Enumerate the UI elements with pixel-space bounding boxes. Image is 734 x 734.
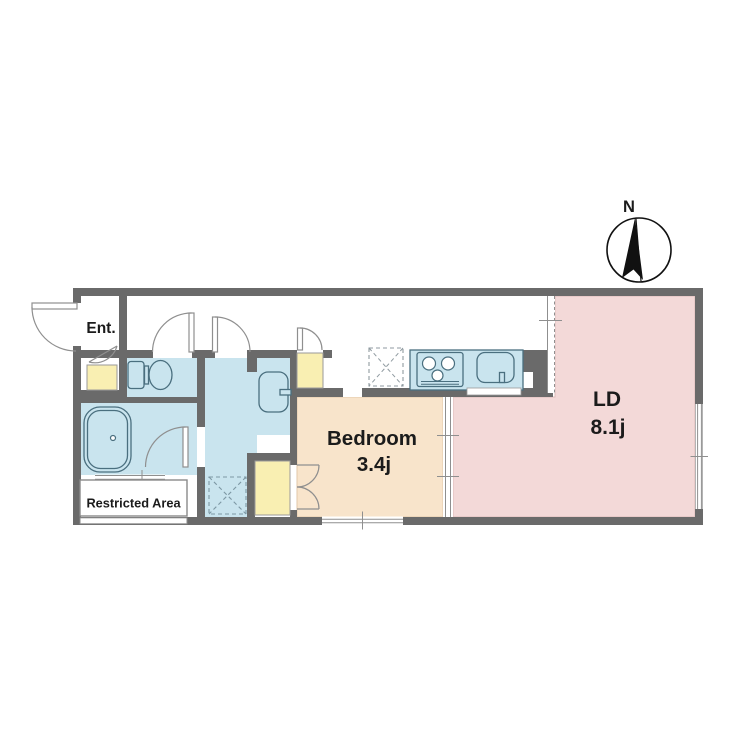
sink-icon [477,353,514,383]
living-dining-label: LD [593,388,621,411]
hall-closet-door [298,328,323,350]
living-dining-room [453,296,695,517]
bedroom-closet [255,461,290,515]
counter-lip [467,388,521,395]
shoe-cabinet [87,365,117,390]
compass-north-label: N [623,198,635,216]
floor-plan: Restricted Area N Ent. Bedroom 3.4j LD 8… [0,0,734,734]
hall-closet [297,353,323,388]
floor-plan-svg: Restricted Area N Ent. Bedroom 3.4j LD 8… [0,0,734,734]
bedroom-label: Bedroom [327,427,417,450]
washbasin-icon [259,372,291,412]
bedroom-area-label: 3.4j [357,453,391,476]
washroom-door [213,317,251,352]
entrance-door [32,303,77,351]
refrigerator-space [369,348,403,386]
laundry-area [205,453,247,517]
dead-space [257,435,290,453]
bathtub-icon [84,407,131,472]
stove-icon [417,353,463,387]
entrance-label: Ent. [86,320,115,337]
living-dining-area-label: 8.1j [590,416,625,439]
restricted-area-label: Restricted Area [86,496,181,511]
compass: N [607,198,671,282]
bedroom-doorway [343,388,362,397]
kitchen [369,348,523,395]
toilet-door [153,313,195,352]
